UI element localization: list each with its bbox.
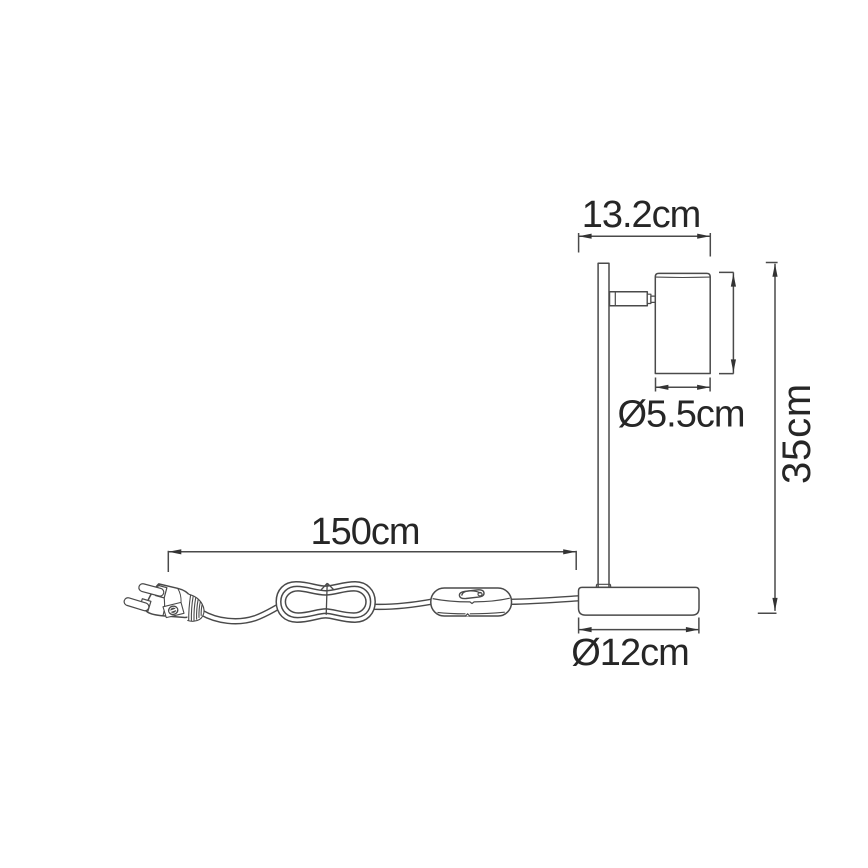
svg-text:150cm: 150cm (310, 511, 419, 553)
svg-text:Ø5.5cm: Ø5.5cm (617, 394, 744, 436)
svg-text:35cm: 35cm (775, 383, 819, 484)
svg-text:13.2cm: 13.2cm (582, 194, 701, 236)
svg-text:Ø12cm: Ø12cm (571, 632, 688, 674)
